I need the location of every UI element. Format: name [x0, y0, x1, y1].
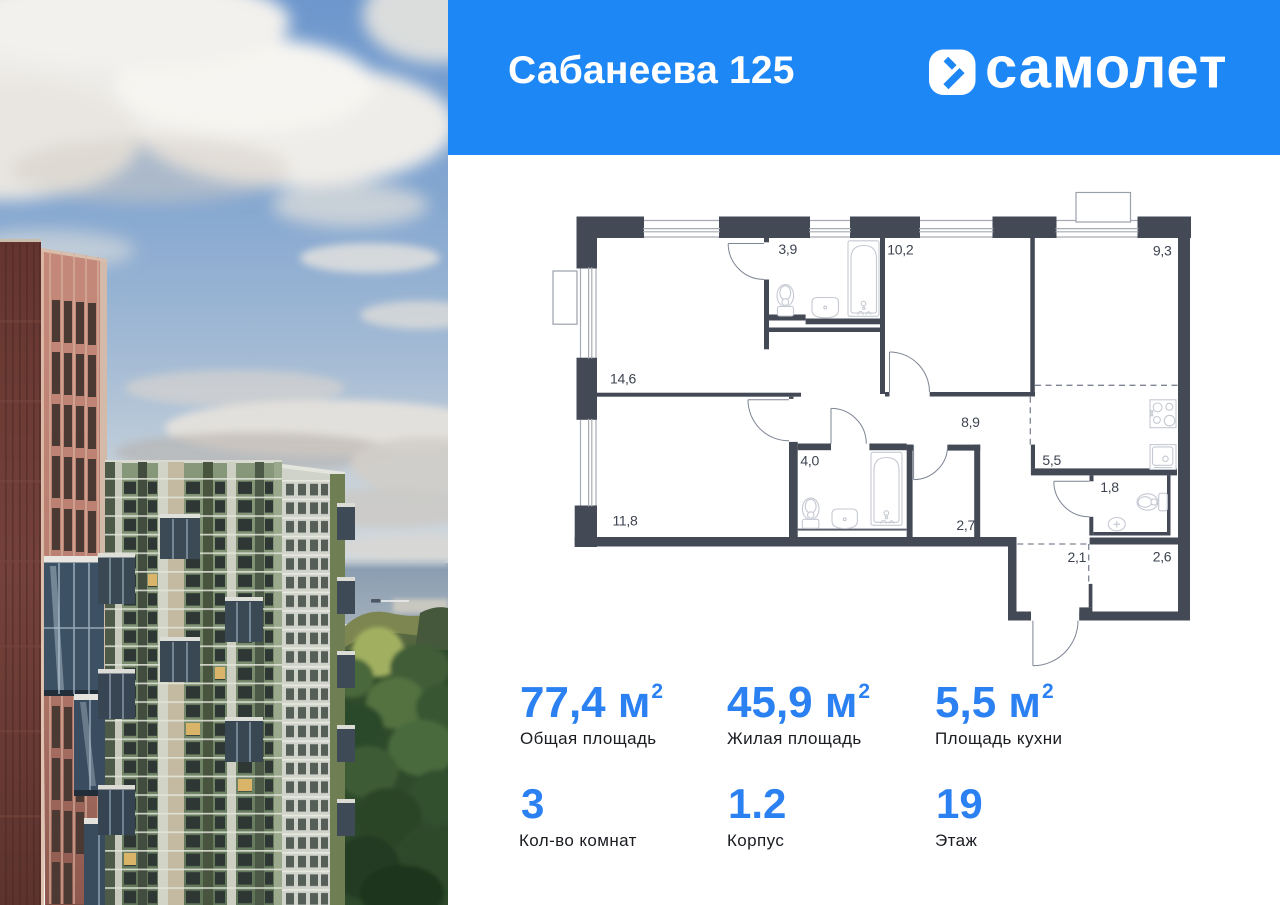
svg-text:8,9: 8,9	[961, 414, 980, 430]
svg-text:14,6: 14,6	[610, 371, 637, 387]
svg-text:самолет: самолет	[985, 45, 1225, 101]
svg-text:9,3: 9,3	[1153, 243, 1172, 259]
svg-text:5,5: 5,5	[1042, 452, 1061, 468]
svg-text:4,0: 4,0	[800, 453, 819, 469]
svg-text:2,7: 2,7	[956, 517, 975, 533]
svg-text:2,6: 2,6	[1153, 549, 1172, 565]
svg-text:11,8: 11,8	[612, 513, 638, 529]
svg-text:10,2: 10,2	[887, 241, 914, 257]
svg-text:2,1: 2,1	[1068, 549, 1087, 565]
svg-text:3,9: 3,9	[778, 241, 797, 257]
svg-text:1,8: 1,8	[1100, 479, 1119, 495]
